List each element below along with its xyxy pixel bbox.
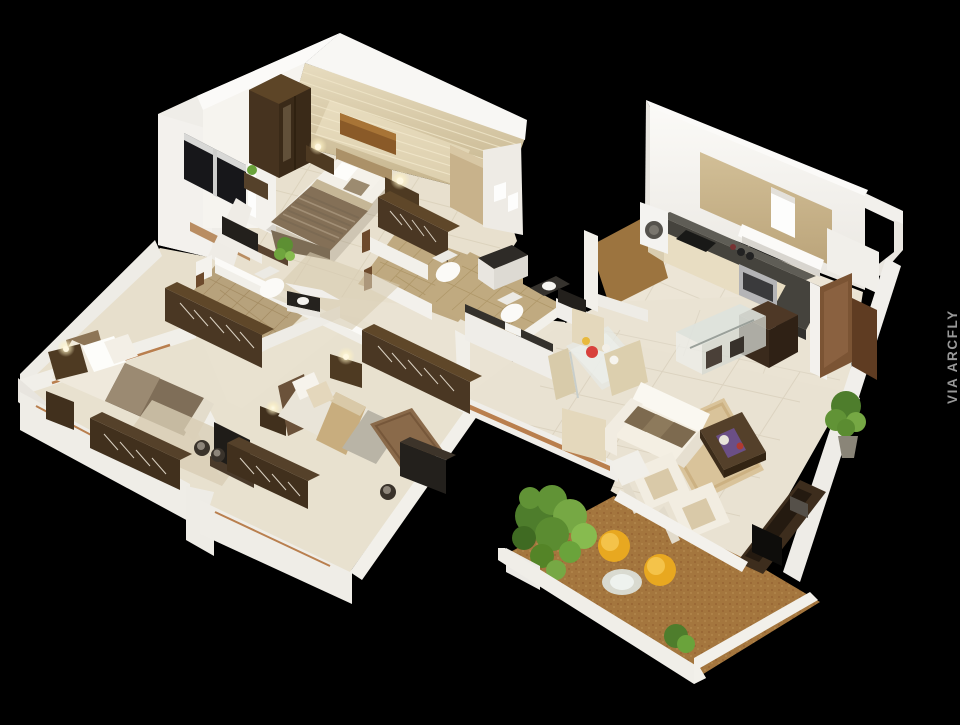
svg-text:VIA ARCFLY: VIA ARCFLY: [945, 309, 960, 404]
